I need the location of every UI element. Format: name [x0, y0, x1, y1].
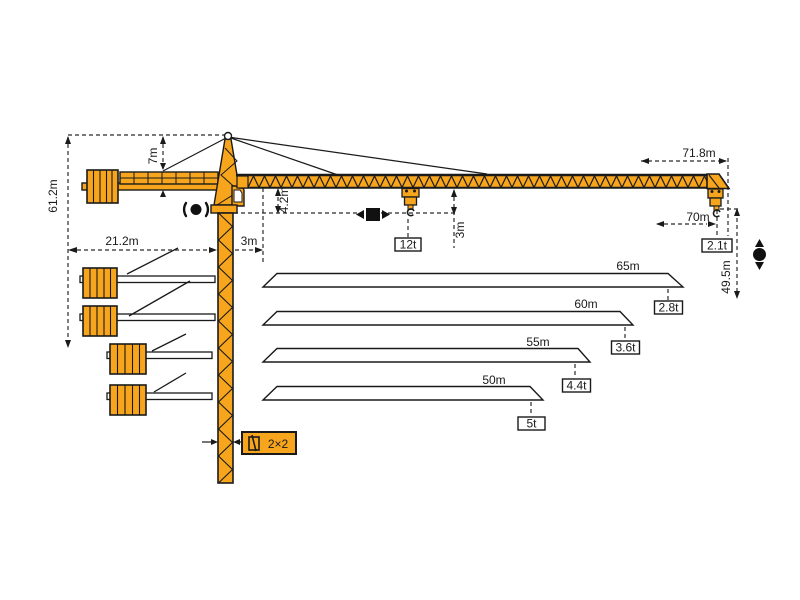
hoist-icon	[753, 239, 766, 270]
hook-height-label: 49.5m	[719, 260, 733, 293]
max-capacity-label: 12t	[400, 238, 417, 252]
hook-icon	[407, 205, 414, 216]
jib-variant-55m	[263, 349, 591, 393]
counterweight-config-55m	[107, 334, 212, 374]
crane-diagram-page: 2×2 61.2m 7m 21.2m 3m 4.2m 3m 12t 71.8m …	[0, 0, 800, 600]
counterweight-tail-block	[87, 170, 118, 203]
variant-50m-capacity: 5t	[526, 417, 537, 431]
slewing-platform	[211, 205, 237, 213]
variant-65m-length: 65m	[616, 259, 639, 273]
tower-head-label: 7m	[146, 148, 160, 165]
counterweight-config-50m	[107, 373, 212, 415]
tip-capacity-label: 2.1t	[707, 239, 728, 253]
variant-55m-capacity: 4.4t	[566, 379, 587, 393]
mast	[218, 213, 233, 483]
variant-65m-capacity: 2.8t	[658, 301, 679, 315]
trolley-mid	[402, 189, 419, 216]
mast-offset-label: 3m	[241, 234, 258, 248]
variant-60m-capacity: 3.6t	[615, 341, 636, 355]
variant-50m-length: 50m	[482, 373, 505, 387]
counter-jib-radius-label: 21.2m	[105, 234, 138, 248]
apex-pin-icon	[225, 133, 232, 140]
hook-clearance-label: 3m	[453, 222, 467, 239]
total-height-label: 61.2m	[46, 179, 60, 212]
max-radius-label: 70m	[686, 210, 709, 224]
crane-diagram: 2×2 61.2m 7m 21.2m 3m 4.2m 3m 12t 71.8m …	[0, 0, 800, 600]
jib-variant-60m	[263, 312, 640, 355]
counter-jib	[82, 170, 218, 203]
jib-foot-depth-label: 4.2m	[277, 187, 291, 214]
variant-55m-length: 55m	[526, 335, 549, 349]
trolley-tip	[708, 189, 723, 217]
jib-variant-65m	[263, 274, 683, 315]
tie-bars	[163, 137, 487, 175]
mast-section-label: 2×2	[268, 437, 289, 451]
jib-overall-label: 71.8m	[682, 146, 715, 160]
variant-60m-length: 60m	[574, 297, 597, 311]
jib-variant-50m	[263, 387, 545, 431]
counterweight-config-65m	[80, 248, 215, 298]
mast-section-callout: 2×2	[202, 432, 296, 454]
operator-cab	[232, 186, 244, 206]
main-jib	[236, 174, 729, 189]
slewing-icon	[184, 203, 208, 216]
trolley-travel-icon	[356, 208, 390, 221]
